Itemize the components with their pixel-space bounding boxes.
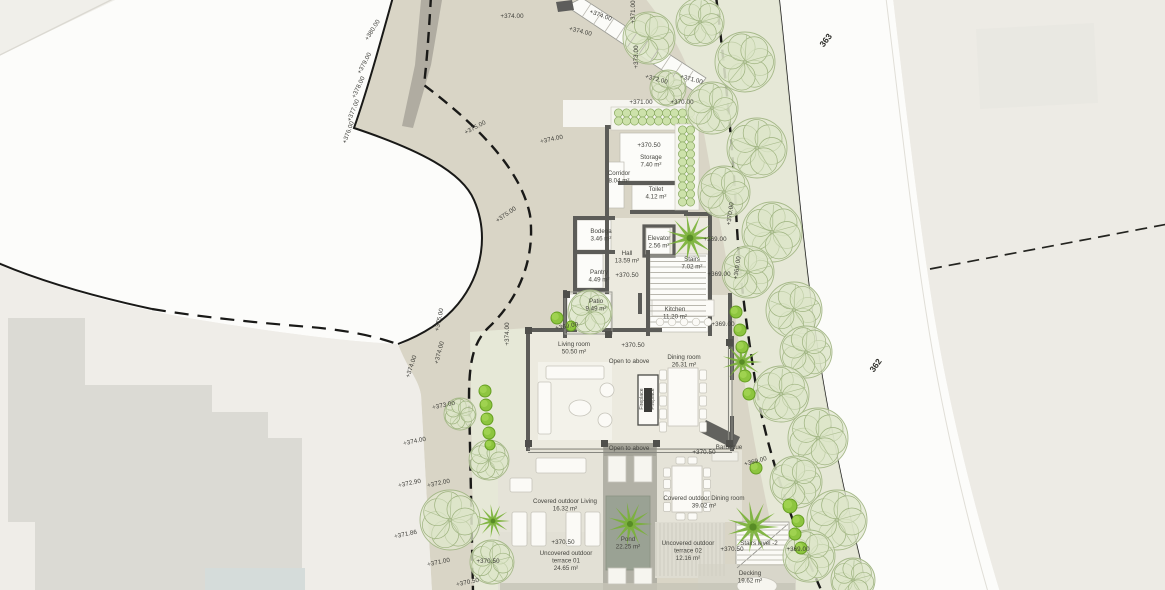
tree — [715, 32, 775, 92]
room-label: Toilet — [649, 186, 664, 193]
hedge-bush — [614, 117, 622, 125]
hedge-bush — [638, 109, 646, 117]
room-label: Uncovered outdoor — [662, 540, 715, 547]
hedge-bush — [654, 109, 662, 117]
elevation-label: +370.50 — [615, 272, 639, 279]
fireplace-label: Fireplace — [639, 388, 645, 409]
bush — [789, 528, 801, 540]
room-label: Stairs level -2 — [740, 540, 778, 547]
column — [601, 440, 608, 447]
room-label: Hall — [622, 250, 633, 257]
neighbor-pool — [205, 568, 305, 590]
room-label: 26.31 m² — [672, 361, 696, 368]
hedge-bush — [662, 117, 670, 125]
bush — [483, 427, 495, 439]
room-label: Decking — [739, 570, 762, 577]
bush — [485, 440, 495, 450]
room-label: Covered outdoor Living — [533, 498, 598, 505]
lounge-chair — [598, 413, 612, 427]
outdoor-sofa — [536, 458, 586, 473]
room-label: 13.59 m² — [615, 257, 639, 264]
room-label: 11.20 m² — [663, 313, 687, 320]
hedge-bush — [678, 109, 686, 117]
elevation-label: +370.50 — [720, 546, 744, 553]
hedge-bush — [622, 117, 630, 125]
room-label: 7.40 m² — [641, 161, 662, 168]
room-label: 8.04 m² — [609, 177, 630, 184]
room-label: Dining room — [667, 354, 700, 361]
hedge-bush — [686, 166, 694, 174]
room-label: 39.02 m² — [692, 502, 716, 509]
sun-lounger — [531, 512, 546, 546]
tree — [420, 490, 480, 550]
room-label: 2.56 m² — [649, 242, 670, 249]
hedge-bush — [686, 142, 694, 150]
hedge-bush — [686, 182, 694, 190]
sun-lounger — [585, 512, 600, 546]
room-label: terrace 01 — [552, 557, 580, 564]
column — [726, 339, 733, 346]
hedge-bush — [678, 142, 686, 150]
hedge-bush — [678, 166, 686, 174]
barbecue-counter — [712, 452, 738, 461]
room-label: Open to above — [609, 358, 650, 365]
planter — [634, 456, 652, 482]
column — [525, 440, 532, 447]
column — [605, 331, 612, 338]
hedge-bush — [678, 182, 686, 190]
elevation-label: +369.00 — [707, 271, 731, 278]
hedge-bush — [678, 150, 686, 158]
elevation-label: +370.00 — [670, 99, 694, 106]
tree — [686, 82, 738, 134]
hedge-bush — [686, 134, 694, 142]
room-label: Open to above — [609, 445, 650, 452]
planter — [608, 456, 626, 482]
elevation-label: +370.50 — [476, 558, 500, 565]
far-right-patch — [976, 23, 1098, 109]
elevation-label: +370.50 — [621, 342, 645, 349]
entry-wall-piece — [556, 0, 574, 12]
column — [563, 291, 570, 298]
hedge-bush — [662, 109, 670, 117]
room-label: Pantry — [590, 269, 609, 276]
elevation-label: +369.00 — [703, 236, 727, 243]
room-label: 4.12 m² — [646, 193, 667, 200]
bush — [479, 385, 491, 397]
hedge-bush — [686, 158, 694, 166]
room-label: 24.65 m² — [554, 565, 578, 572]
bush — [792, 515, 804, 527]
elevation-label: +371.00 — [629, 99, 653, 106]
elevation-label: +371.00 — [630, 0, 637, 24]
room-label: terrace 02 — [674, 547, 702, 554]
bush — [730, 306, 742, 318]
bush — [743, 388, 755, 400]
hedge-bush — [686, 174, 694, 182]
bush — [783, 499, 797, 513]
elevation-label: +369.00 — [711, 321, 735, 328]
bush — [734, 324, 746, 336]
site-plan-svg: +380.00+379.00+378.00+377.00+376.00+374.… — [0, 0, 1165, 590]
column — [525, 327, 532, 334]
column — [653, 440, 660, 447]
hedge-bush — [614, 109, 622, 117]
elevation-label: +370.50 — [692, 449, 716, 456]
hedge-bush — [622, 109, 630, 117]
planter — [608, 568, 626, 584]
hedge-bush — [678, 174, 686, 182]
room-label: 3.46 m² — [591, 235, 612, 242]
hedge-bush — [646, 109, 654, 117]
room-label: Patio — [589, 298, 604, 305]
bush — [480, 399, 492, 411]
elevation-label: +374.00 — [500, 13, 524, 20]
room-label: 12.16 m² — [676, 555, 700, 562]
room-label: 7.02 m² — [682, 263, 703, 270]
elevation-label: +370.50 — [637, 142, 661, 149]
hedge-bush — [678, 134, 686, 142]
room-label: 19.62 m² — [738, 577, 762, 584]
lounge-chair — [600, 383, 614, 397]
room-label: 50.50 m² — [562, 348, 586, 355]
elevation-label: +369.00 — [786, 546, 810, 553]
hedge-bush — [678, 198, 686, 206]
elevation-label: +373.00 — [633, 45, 640, 69]
room-label: Elevator — [648, 235, 671, 242]
hedge-bush — [686, 190, 694, 198]
hedge-bush — [638, 117, 646, 125]
dining-table — [668, 368, 698, 426]
room-label: 16.32 m² — [553, 505, 577, 512]
bush — [551, 312, 563, 324]
room-label: Stairs — [684, 256, 700, 263]
room-label: Covered outdoor Dining room — [663, 495, 744, 502]
tree — [698, 166, 750, 218]
fireplace-label: Fireplace — [650, 388, 656, 409]
hedge-bush — [630, 109, 638, 117]
room-label: Barbecue — [716, 444, 743, 451]
hedge-bush — [678, 190, 686, 198]
room-label: Living room — [558, 341, 590, 348]
hedge-bush — [654, 117, 662, 125]
sun-lounger — [512, 512, 527, 546]
room-label: 22.25 m² — [616, 543, 640, 550]
room-label: 9.49 m² — [586, 305, 607, 312]
outdoor-armchair — [510, 478, 532, 492]
room-label: Bodega — [590, 228, 612, 235]
hedge-bush — [678, 126, 686, 134]
hedge-bush — [686, 198, 694, 206]
elevation-label: +374.00 — [504, 322, 511, 346]
planter — [634, 568, 652, 584]
room-label: Corridor — [608, 170, 630, 177]
coffee-table — [569, 400, 591, 416]
room-label: Uncovered outdoor — [540, 550, 593, 557]
hedge — [675, 124, 699, 210]
bush — [739, 370, 751, 382]
hedge-bush — [670, 109, 678, 117]
room-label: Storage — [640, 154, 662, 161]
hedge-bush — [678, 158, 686, 166]
bush — [736, 341, 748, 353]
hedge-bush — [630, 117, 638, 125]
site-plan-frame: +380.00+379.00+378.00+377.00+376.00+374.… — [0, 0, 1165, 590]
sofa-top — [546, 366, 604, 379]
hedge-bush — [646, 117, 654, 125]
tree — [676, 0, 724, 46]
sofa-left — [538, 382, 551, 434]
hedge-bush — [686, 126, 694, 134]
room-label: Kitchen — [665, 306, 686, 313]
room-label: Pond — [621, 536, 636, 543]
elevation-label: +370.50 — [551, 539, 575, 546]
room-label: 4.49 m² — [589, 276, 610, 283]
bush — [481, 413, 493, 425]
hedge-bush — [686, 150, 694, 158]
